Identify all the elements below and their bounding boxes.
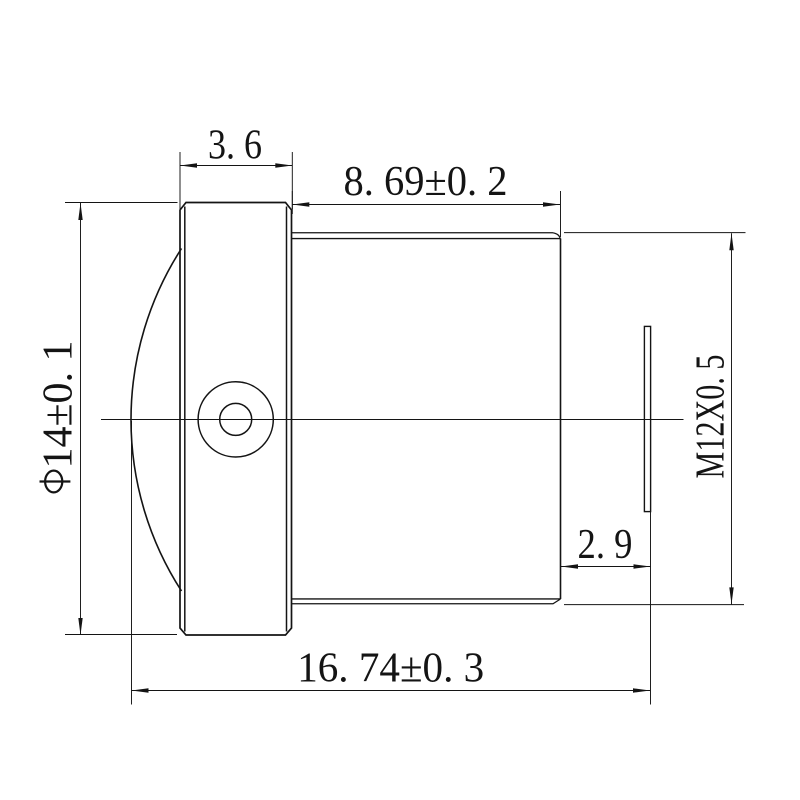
svg-text:M12X0. 5: M12X0. 5: [687, 355, 733, 479]
svg-text:2. 9: 2. 9: [578, 521, 633, 568]
svg-text:14±0. 1: 14±0. 1: [35, 341, 82, 469]
svg-text:3. 6: 3. 6: [208, 121, 262, 168]
svg-text:8. 69±0. 2: 8. 69±0. 2: [344, 158, 508, 205]
svg-text:16. 74±0. 3: 16. 74±0. 3: [297, 645, 484, 692]
